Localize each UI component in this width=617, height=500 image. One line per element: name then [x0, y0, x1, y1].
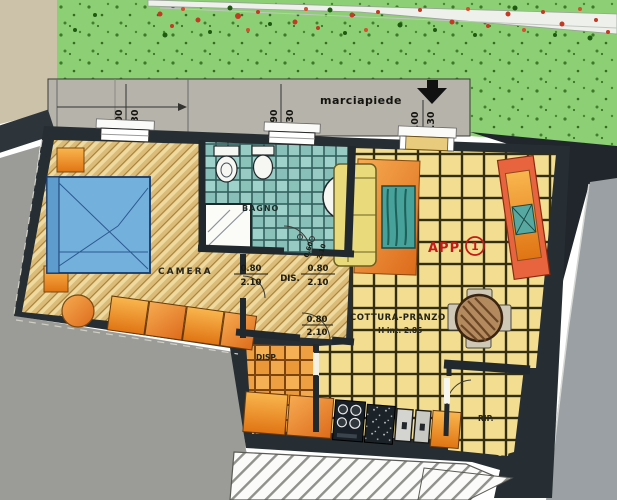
bed [47, 177, 150, 273]
toilet [214, 146, 239, 182]
label-camera: CAMERA [158, 267, 213, 277]
label-disp: DISP. [256, 353, 278, 362]
base-cabinet [243, 392, 288, 435]
door-gap [313, 353, 319, 375]
svg-text:2.10: 2.10 [308, 278, 329, 288]
stove [333, 400, 366, 442]
base-cabinet [287, 395, 334, 438]
label-rip: RIP. [478, 414, 494, 423]
door-gap [444, 378, 450, 403]
worktop [364, 404, 395, 444]
window [264, 122, 321, 145]
label-cottura-height: H int. 2.85 [378, 326, 422, 335]
floor-plan-drawing: marciapiede 1.00 1.30 0.90 1.30 1.00 2.3… [0, 0, 617, 500]
teal-runner [382, 186, 415, 248]
svg-text:2.10: 2.10 [307, 328, 328, 338]
pouf [62, 295, 94, 327]
svg-text:0.80: 0.80 [241, 264, 262, 274]
nightstand [57, 148, 84, 172]
entrance-door [398, 126, 457, 151]
label-dis: DIS. [280, 274, 300, 284]
label-cottura: COTTURA-PRANZO [350, 313, 446, 323]
bidet [252, 146, 274, 179]
svg-text:0.80: 0.80 [307, 315, 328, 325]
window [96, 119, 155, 142]
floor-plan: marciapiede 1.00 1.30 0.90 1.30 1.00 2.3… [0, 0, 617, 500]
apartment-name: APP. [428, 241, 464, 256]
svg-text:0.80: 0.80 [308, 264, 329, 274]
sidewalk-label: marciapiede [320, 94, 402, 107]
svg-text:2.10: 2.10 [241, 278, 262, 288]
apartment-number: 1 [471, 240, 479, 253]
label-bagno: BAGNO [242, 204, 279, 213]
